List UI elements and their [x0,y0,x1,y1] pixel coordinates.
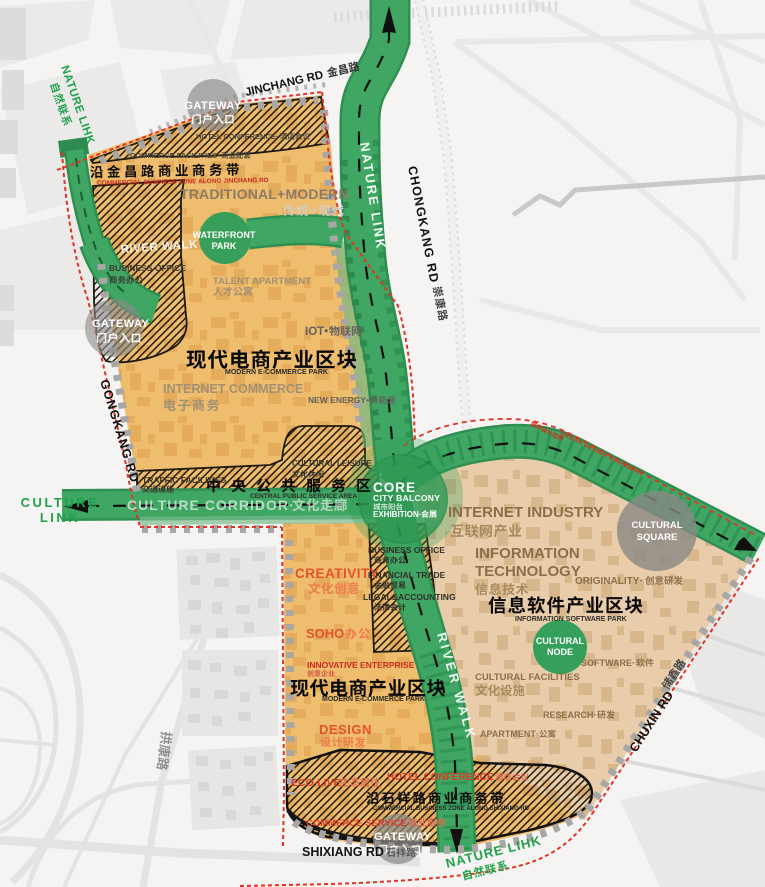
svg-text:HOTEL CONFERENCE: HOTEL CONFERENCE [387,772,494,783]
svg-text:INFORMATION SOFTWARE PARK: INFORMATION SOFTWARE PARK [515,616,627,623]
svg-text:APARTMENT·: APARTMENT· [480,729,539,739]
svg-text:CITY BALCONY: CITY BALCONY [373,493,440,503]
svg-text:GATEWAY: GATEWAY [184,100,241,112]
svg-text:ECO-LIVE: ECO-LIVE [291,777,341,789]
svg-text:FINANCIAL TRADE: FINANCIAL TRADE [368,570,446,580]
svg-text:PARK: PARK [212,241,237,251]
svg-text:GATEWAY: GATEWAY [92,318,149,330]
svg-text:ORIGINALITY·: ORIGINALITY· [575,576,643,587]
svg-text:RESEARCH·: RESEARCH· [543,710,597,720]
svg-text:WATERFRONT: WATERFRONT [193,230,256,240]
svg-text:IOT•: IOT• [305,326,328,338]
svg-text:SQUARE: SQUARE [637,532,678,543]
svg-text:MODERN E-COMMERCE PARK: MODERN E-COMMERCE PARK [225,369,328,376]
svg-text:INTERNET COMMERCE: INTERNET COMMERCE [163,382,303,396]
svg-text:SHIXIANG RD: SHIXIANG RD [302,845,384,859]
svg-text:DESIGN: DESIGN [319,722,372,737]
svg-text:CULTURAL: CULTURAL [631,520,682,531]
svg-text:COMMERCE SERVICE: COMMERCE SERVICE [306,818,407,829]
svg-text:INNOVATIVE ENTERPRISE: INNOVATIVE ENTERPRISE [307,660,415,670]
svg-text:CULTURAL FACILITIES: CULTURAL FACILITIES [475,672,580,683]
svg-text:EXHIBITION·: EXHIBITION· [373,510,421,519]
svg-text:COMMERCIAL BUSINESS ZONE ALONG: COMMERCIAL BUSINESS ZONE ALONG SHIXIANG … [373,806,530,812]
svg-text:BUSINESS OFFICE: BUSINESS OFFICE [109,263,186,273]
svg-text:CULTURE: CULTURE [21,495,100,510]
svg-text:CREATIVITY: CREATIVITY [295,566,379,581]
svg-text:CULTURE CORRIDOR·: CULTURE CORRIDOR· [127,497,295,513]
svg-text:TECHNOLOGY: TECHNOLOGY [475,563,581,580]
svg-text:SOHO: SOHO [306,626,344,641]
svg-text:INTERNET INDUSTRY: INTERNET INDUSTRY [448,504,603,521]
svg-text:LINK: LINK [40,510,80,525]
svg-text:NODE: NODE [547,647,573,657]
svg-text:SOFTWARE·: SOFTWARE· [581,658,635,668]
svg-text:INFORMATION: INFORMATION [475,545,580,562]
svg-text:MODERN E-COMMERCE PARK: MODERN E-COMMERCE PARK [322,696,425,703]
svg-text:CULTURAL: CULTURAL [536,636,585,646]
svg-text:BUSINESS OFFICE: BUSINESS OFFICE [368,545,445,555]
svg-text:TRADITIONAL+MODERN: TRADITIONAL+MODERN [180,186,349,202]
svg-text:LEGAL&ACCOUNTING: LEGAL&ACCOUNTING [363,592,456,602]
svg-text:HOTEL CONFERENCE·: HOTEL CONFERENCE· [196,132,278,141]
svg-text:CULTURAL LEISURE: CULTURAL LEISURE [292,459,372,468]
svg-text:NEW ENERGY•: NEW ENERGY• [308,395,369,405]
svg-text:TALENT APARTMENT: TALENT APARTMENT [213,276,311,287]
svg-text:GATEWAY: GATEWAY [374,831,431,843]
svg-text:COMMERCE FACILITIES·: COMMERCE FACILITIES· [130,151,220,160]
